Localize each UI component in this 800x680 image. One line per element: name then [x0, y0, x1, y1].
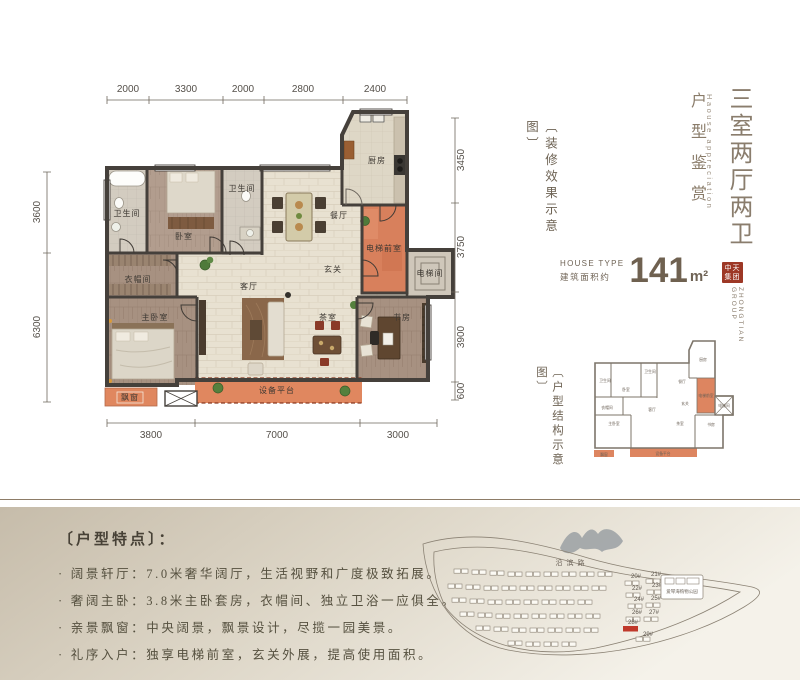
- mini-label-platform: 设备平台: [655, 451, 670, 456]
- room-label-tea: 茶室: [319, 312, 337, 322]
- subtitle-english: Haouse appreciation: [705, 94, 714, 264]
- poi-label: 爱琴海购物公园: [666, 588, 698, 595]
- bullet-icon: ·: [58, 621, 65, 635]
- room-label-cloakroom: 衣帽间: [125, 274, 152, 284]
- brand-logo: 中天 集团: [722, 262, 743, 283]
- brand-logo-line1: 中天: [722, 264, 743, 273]
- mini-label-bedroom: 卧室: [622, 387, 630, 392]
- mini-label-elevator: 电梯间: [718, 403, 730, 408]
- bullet-icon: ·: [58, 567, 65, 581]
- site-map: 沿滨路 20# 21# 22# 23# 24# 25# 26# 27# 28# …: [420, 508, 780, 676]
- room-label-dining: 餐厅: [330, 211, 348, 220]
- dim-left-1: 3600: [32, 200, 43, 223]
- site-boundary: [423, 537, 760, 655]
- dim-top-2: 3300: [175, 84, 198, 95]
- mini-label-bath2: 卫生间: [644, 369, 656, 374]
- dim-right-4: 600: [456, 382, 467, 399]
- highlighted-building: [623, 626, 638, 632]
- dim-right-2: 3750: [456, 235, 467, 258]
- features-title: 〔户型特点〕：: [58, 528, 457, 549]
- dim-top-1: 2000: [117, 84, 140, 95]
- building-label-25: 25#: [651, 596, 662, 602]
- features-list: ·阔景轩厅：7.0米奢华阔厅，生活视野和广度极致拓展。 ·奢阔主卧：3.8米主卧…: [58, 561, 457, 669]
- features-section: 〔户型特点〕： ·阔景轩厅：7.0米奢华阔厅，生活视野和广度极致拓展。 ·奢阔主…: [58, 528, 457, 669]
- dim-right-1: 3450: [456, 148, 467, 171]
- mini-label-bay: 飘窗: [600, 452, 608, 457]
- bullet-icon: ·: [58, 648, 65, 662]
- page: { "title_block": { "main_title": "三室两厅两卫…: [0, 0, 800, 680]
- dim-top-5: 2400: [364, 84, 387, 95]
- dim-top-3: 2000: [232, 84, 255, 95]
- building-label-21: 21#: [651, 572, 662, 578]
- dim-bottom-3: 3000: [387, 430, 410, 441]
- building-label-28: 28#: [628, 620, 639, 626]
- room-label-platform: 设备平台: [259, 385, 295, 395]
- room-label-living: 客厅: [240, 281, 258, 291]
- feature-text: 礼序入户：独享电梯前室，玄关外展，提高使用面积。: [71, 648, 433, 662]
- feature-text: 亲景飘窗：中央阔景，飘景设计，尽揽一园美景。: [71, 621, 403, 635]
- mini-label-master: 主卧室: [608, 421, 620, 426]
- dim-right-3: 3900: [456, 325, 467, 348]
- mini-label-study: 书房: [707, 422, 715, 427]
- feature-item: ·奢阔主卧：3.8米主卧套房，衣帽间、独立卫浴一应俱全。: [58, 588, 457, 615]
- building-label-22: 22#: [632, 586, 643, 592]
- window-symbol: [165, 391, 197, 406]
- mini-label-foyer: 玄关: [681, 401, 689, 406]
- building-label-29: 29#: [643, 632, 654, 638]
- house-type-label: HOUSE TYPE: [560, 259, 624, 268]
- building-label-24: 24#: [634, 597, 645, 603]
- dim-bottom-2: 7000: [266, 430, 289, 441]
- structure-diagram: 卫生间 卧室 卫生间 厨房 餐厅 客厅 玄关 衣帽间 主卧室 茶室 书房 电梯前…: [560, 318, 745, 463]
- dim-bottom-1: 3800: [140, 430, 163, 441]
- bullet-icon: ·: [58, 594, 65, 608]
- building-label-27: 27#: [649, 610, 660, 616]
- poi-box: 爱琴海购物公园: [661, 575, 703, 599]
- room-label-study: 书房: [393, 312, 411, 322]
- building-label-26: 26#: [632, 610, 643, 616]
- separator-line: [0, 499, 800, 500]
- room-label-elevator: 电梯间: [417, 268, 444, 278]
- room-label-master: 主卧室: [142, 312, 169, 322]
- mini-label-living: 客厅: [648, 407, 656, 412]
- feature-text: 阔景轩厅：7.0米奢华阔厅，生活视野和广度极致拓展。: [71, 567, 442, 581]
- building-label-20: 20#: [631, 574, 642, 580]
- room-label-bath1: 卫生间: [114, 208, 141, 218]
- mini-label-tea: 茶室: [676, 421, 684, 426]
- room-label-foyer: 玄关: [324, 264, 342, 274]
- brand-logo-line2: 集团: [722, 273, 743, 282]
- feature-item: ·亲景飘窗：中央阔景，飘景设计，尽揽一园美景。: [58, 615, 457, 642]
- area-unit: m²: [690, 268, 708, 285]
- room-label-bay: 飘窗: [121, 392, 139, 402]
- room-label-bedroom: 卧室: [175, 231, 193, 241]
- area-value: 141: [629, 257, 687, 286]
- building-footprints: [448, 569, 661, 646]
- feature-item: ·阔景轩厅：7.0米奢华阔厅，生活视野和广度极致拓展。: [58, 561, 457, 588]
- area-label: 建筑面积约: [560, 271, 624, 283]
- road-label: 沿滨路: [556, 558, 589, 567]
- mini-label-kitchen: 厨房: [699, 357, 707, 362]
- mini-label-cloakroom: 衣帽间: [601, 405, 613, 410]
- area-block: HOUSE TYPE 建筑面积约 141 m²: [560, 257, 708, 286]
- page-title: 三室两厅两卫: [721, 86, 756, 256]
- dim-top-4: 2800: [292, 84, 315, 95]
- mini-label-bath1: 卫生间: [599, 378, 611, 383]
- feature-text: 奢阔主卧：3.8米主卧套房，衣帽间、独立卫浴一应俱全。: [71, 594, 457, 608]
- mini-label-lobby: 电梯前室: [698, 393, 713, 398]
- dim-left-2: 6300: [32, 315, 43, 338]
- mini-label-dining: 餐厅: [678, 379, 686, 384]
- feature-item: ·礼序入户：独享电梯前室，玄关外展，提高使用面积。: [58, 642, 457, 669]
- room-label-lobby: 电梯前室: [366, 243, 402, 253]
- floorplan-figure: 厨房 卫生间 卫生间 卧室 衣帽间 主卧室 客厅 餐厅 玄关 茶室 电梯前室 电…: [20, 55, 480, 450]
- sculpture-graphic: [560, 529, 623, 553]
- decoration-note: 〔装修效果示意图〕: [522, 120, 560, 260]
- room-label-kitchen: 厨房: [368, 155, 386, 165]
- room-label-bath2: 卫生间: [229, 183, 256, 193]
